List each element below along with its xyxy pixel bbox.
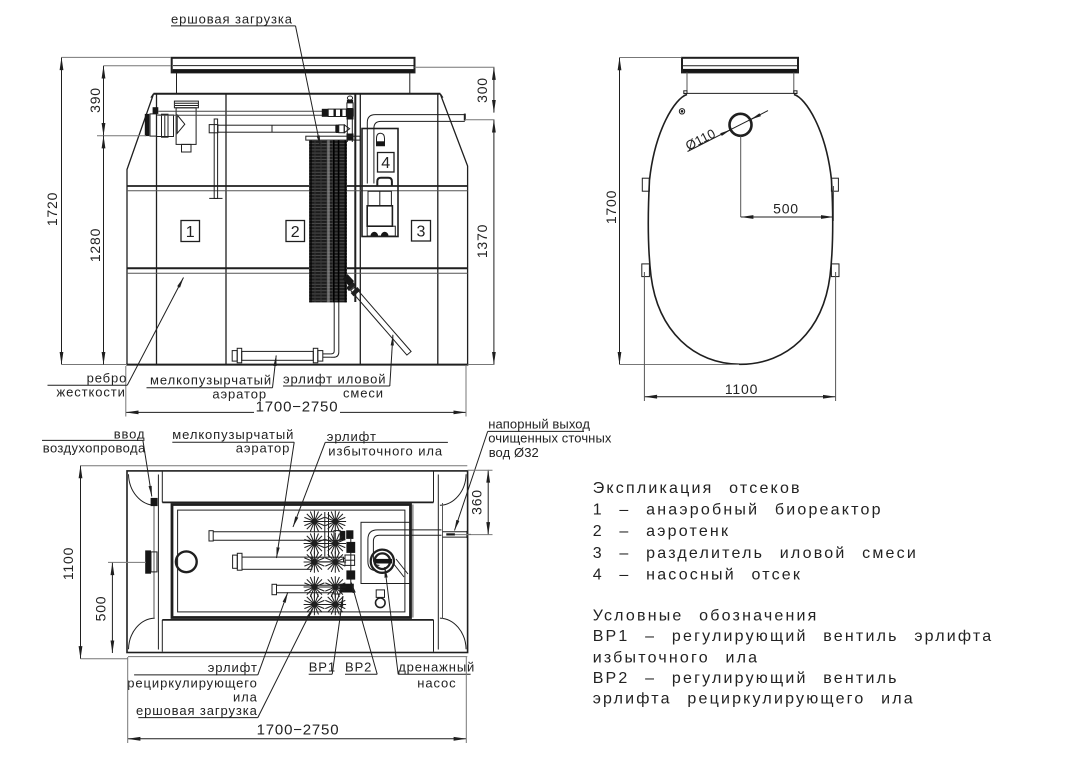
svg-text:1700−2750: 1700−2750 xyxy=(256,399,339,416)
svg-text:500: 500 xyxy=(93,596,109,622)
svg-text:эрлифт иловой: эрлифт иловой xyxy=(283,371,386,386)
svg-text:ВР1 – регулирующий вентиль эрл: ВР1 – регулирующий вентиль эрлифта xyxy=(593,628,994,645)
svg-text:Экспликация отсеков: Экспликация отсеков xyxy=(593,480,802,497)
svg-text:эрлифт: эрлифт xyxy=(208,660,258,675)
svg-text:эрлифта рециркулирующего ила: эрлифта рециркулирующего ила xyxy=(593,691,915,708)
svg-text:360: 360 xyxy=(469,489,485,515)
svg-text:Условные обозначения: Условные обозначения xyxy=(593,608,819,625)
svg-text:ВР2 – регулирующий вентиль: ВР2 – регулирующий вентиль xyxy=(593,670,899,687)
svg-text:ершовая загрузка: ершовая загрузка xyxy=(136,703,258,718)
svg-text:3: 3 xyxy=(417,224,426,241)
svg-text:4 – насосный отсек: 4 – насосный отсек xyxy=(593,567,802,584)
svg-text:очищенных сточных: очищенных сточных xyxy=(488,431,612,446)
svg-text:ВР2: ВР2 xyxy=(345,660,372,675)
svg-text:1720: 1720 xyxy=(44,192,60,226)
svg-text:избыточного ила: избыточного ила xyxy=(593,649,760,666)
svg-text:насос: насос xyxy=(417,676,456,691)
svg-text:аэратор: аэратор xyxy=(236,441,291,456)
svg-text:ершовая загрузка: ершовая загрузка xyxy=(171,12,293,27)
svg-text:эрлифт: эрлифт xyxy=(327,429,377,444)
svg-text:мелкопузырчатый: мелкопузырчатый xyxy=(150,372,272,387)
svg-text:4: 4 xyxy=(381,155,390,172)
svg-text:рециркулирующего: рециркулирующего xyxy=(127,676,258,691)
svg-text:напорный выход: напорный выход xyxy=(488,417,590,432)
svg-text:1 – анаэробный биореактор: 1 – анаэробный биореактор xyxy=(593,502,883,519)
svg-text:смеси: смеси xyxy=(343,386,384,401)
svg-text:1370: 1370 xyxy=(474,224,490,258)
svg-text:390: 390 xyxy=(87,87,103,113)
svg-text:аэратор: аэратор xyxy=(212,387,267,402)
svg-text:ввод: ввод xyxy=(114,426,146,441)
svg-text:1280: 1280 xyxy=(87,228,103,262)
svg-text:вод Ø32: вод Ø32 xyxy=(489,445,539,460)
svg-text:избыточного ила: избыточного ила xyxy=(328,444,443,459)
svg-text:1700: 1700 xyxy=(603,190,619,224)
svg-text:300: 300 xyxy=(474,77,490,103)
svg-text:1: 1 xyxy=(186,224,195,241)
svg-text:500: 500 xyxy=(773,200,799,216)
svg-text:ВР1: ВР1 xyxy=(309,660,336,675)
svg-text:1700−2750: 1700−2750 xyxy=(257,722,340,739)
svg-text:дренажный: дренажный xyxy=(398,660,475,675)
svg-text:2: 2 xyxy=(291,224,300,241)
svg-text:воздухопровода: воздухопровода xyxy=(43,441,146,456)
svg-text:3 – разделитель иловой смеси: 3 – разделитель иловой смеси xyxy=(593,545,918,562)
svg-text:ребро: ребро xyxy=(87,370,128,385)
svg-text:1100: 1100 xyxy=(725,381,758,397)
svg-text:жесткости: жесткости xyxy=(57,385,126,400)
svg-text:2 – аэротенк: 2 – аэротенк xyxy=(593,523,730,540)
svg-text:1100: 1100 xyxy=(60,547,76,580)
